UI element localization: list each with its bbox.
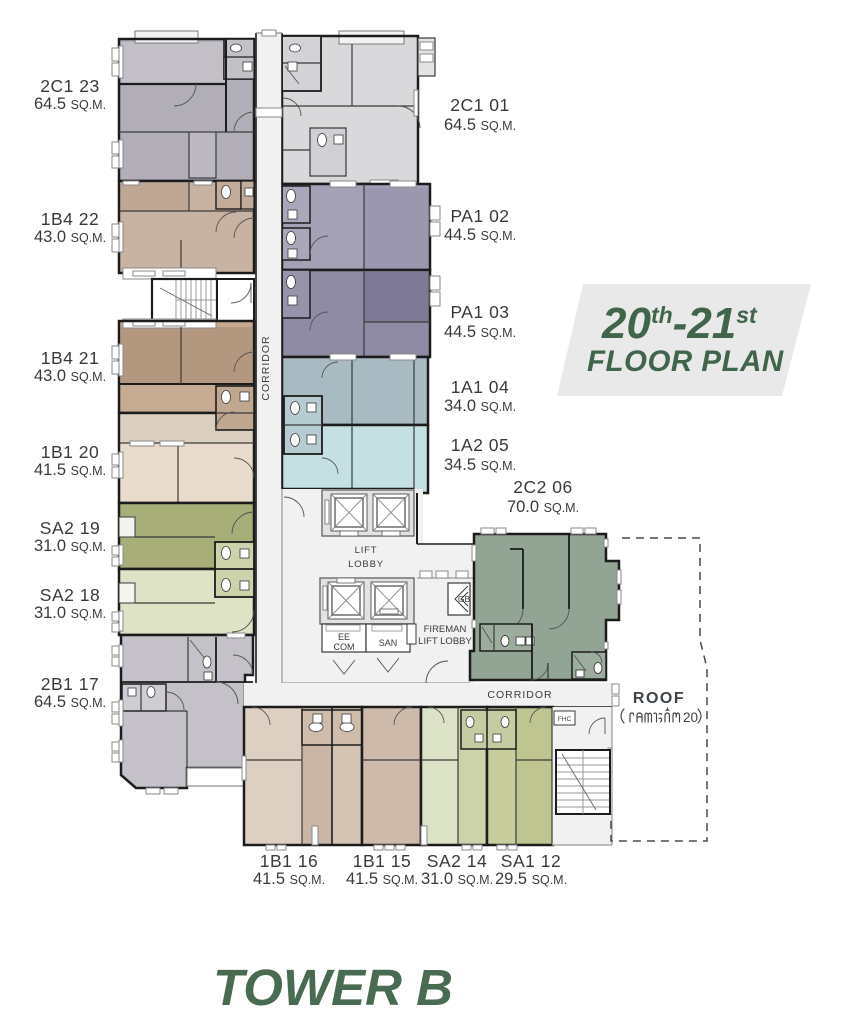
svg-text:PA1 03: PA1 03 [450, 302, 509, 322]
svg-text:41.5 SQ.M.: 41.5 SQ.M. [253, 870, 325, 888]
svg-text:FLOOR PLAN: FLOOR PLAN [587, 345, 784, 378]
svg-text:LIFT LOBBY: LIFT LOBBY [418, 636, 472, 647]
svg-text:1B1 15: 1B1 15 [353, 851, 411, 871]
svg-text:GB: GB [458, 594, 471, 604]
svg-text:2C2 06: 2C2 06 [513, 477, 572, 497]
svg-text:SA2 18: SA2 18 [40, 585, 100, 605]
svg-text:PA1 02: PA1 02 [450, 206, 509, 226]
svg-text:1B1 20: 1B1 20 [41, 442, 99, 462]
svg-text:44.5 SQ.M.: 44.5 SQ.M. [444, 226, 516, 244]
svg-text:1A2 05: 1A2 05 [451, 435, 509, 455]
svg-text:1A1 04: 1A1 04 [451, 377, 509, 397]
svg-text:FIREMAN: FIREMAN [424, 624, 467, 635]
svg-text:SA2 14: SA2 14 [427, 851, 487, 871]
svg-text:20th-21st: 20th-21st [601, 299, 758, 348]
svg-text:ROOF: ROOF [633, 690, 685, 707]
svg-text:34.5 SQ.M.: 34.5 SQ.M. [444, 456, 516, 474]
svg-text:64.5 SQ.M.: 64.5 SQ.M. [34, 693, 106, 711]
svg-text:31.0 SQ.M.: 31.0 SQ.M. [34, 604, 106, 622]
svg-text:43.0 SQ.M.: 43.0 SQ.M. [34, 228, 106, 246]
svg-text:1B4 21: 1B4 21 [41, 348, 99, 368]
svg-text:44.5 SQ.M.: 44.5 SQ.M. [444, 323, 516, 341]
svg-text:LOBBY: LOBBY [348, 559, 384, 570]
svg-text:2B1 17: 2B1 17 [41, 674, 99, 694]
svg-text:COM: COM [334, 642, 355, 652]
svg-text:2C1 01: 2C1 01 [450, 95, 509, 115]
svg-text:31.0 SQ.M.: 31.0 SQ.M. [421, 870, 493, 888]
svg-text:64.5 SQ.M.: 64.5 SQ.M. [444, 116, 516, 134]
svg-text:31.0 SQ.M.: 31.0 SQ.M. [34, 537, 106, 555]
svg-text:CORRIDOR: CORRIDOR [260, 335, 272, 400]
svg-text:1B1 16: 1B1 16 [260, 851, 318, 871]
svg-text:SAN: SAN [379, 638, 398, 648]
svg-text:FHC: FHC [558, 716, 572, 723]
svg-text:EE: EE [338, 632, 350, 642]
svg-text:41.5 SQ.M.: 41.5 SQ.M. [346, 870, 418, 888]
svg-text:20: 20 [683, 710, 698, 725]
svg-text:1B4 22: 1B4 22 [41, 209, 99, 229]
svg-text:SA2 19: SA2 19 [40, 518, 100, 538]
svg-text:SA1 12: SA1 12 [501, 851, 561, 871]
svg-text:43.0 SQ.M.: 43.0 SQ.M. [34, 367, 106, 385]
svg-text:CORRIDOR: CORRIDOR [487, 689, 552, 701]
svg-text:LIFT: LIFT [355, 545, 378, 556]
svg-text:34.0 SQ.M.: 34.0 SQ.M. [444, 397, 516, 415]
svg-text:70.0 SQ.M.: 70.0 SQ.M. [507, 498, 579, 516]
svg-text:TOWER B: TOWER B [213, 959, 453, 1016]
svg-text:41.5 SQ.M.: 41.5 SQ.M. [34, 461, 106, 479]
svg-text:29.5 SQ.M.: 29.5 SQ.M. [495, 870, 567, 888]
svg-text:64.5 SQ.M.: 64.5 SQ.M. [34, 95, 106, 113]
svg-text:2C1 23: 2C1 23 [40, 76, 99, 96]
